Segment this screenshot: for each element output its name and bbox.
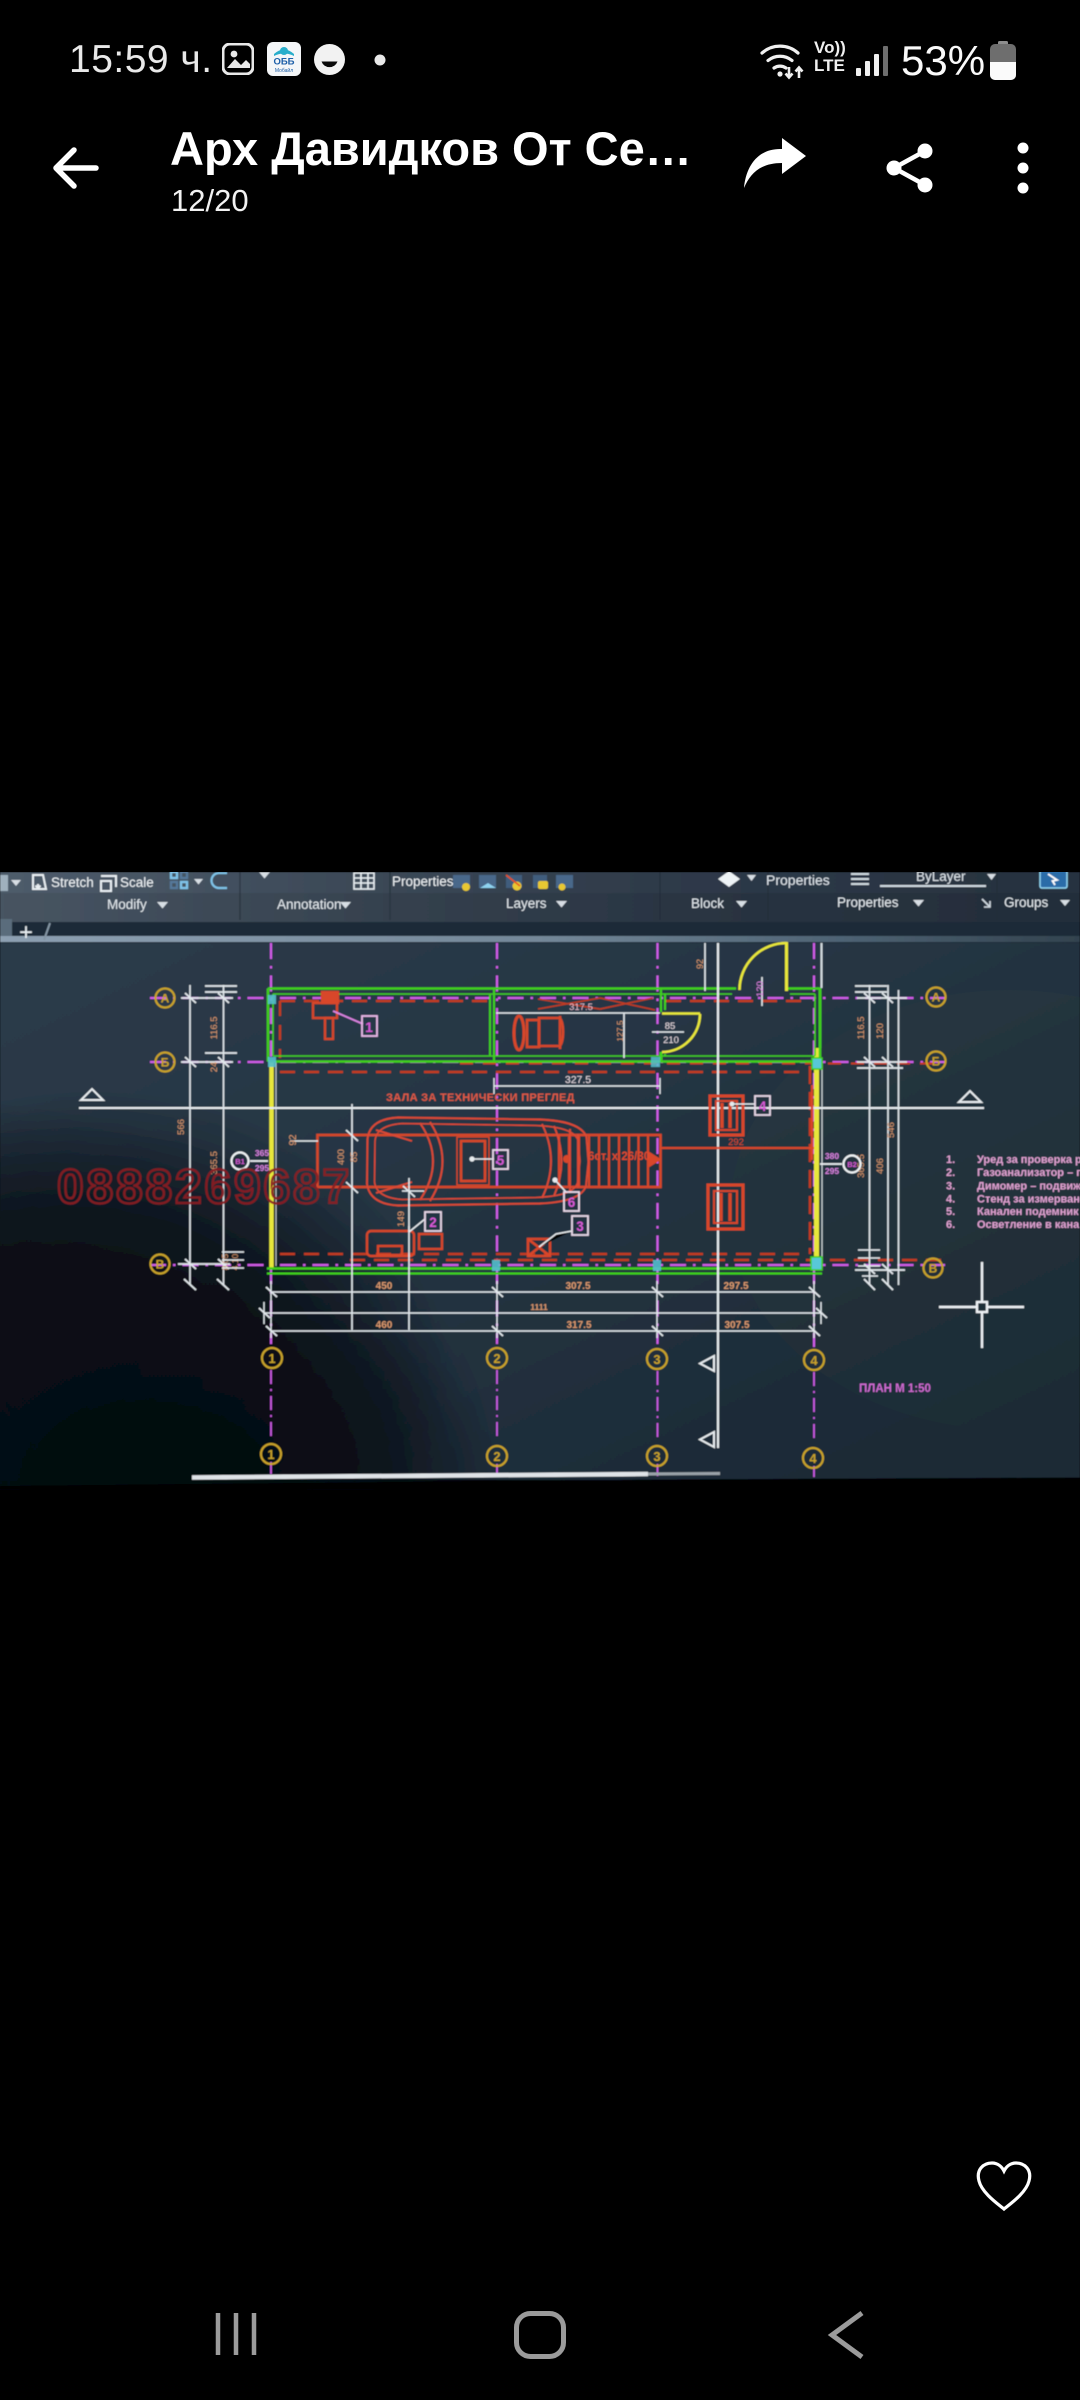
svg-text:92: 92 <box>288 1134 299 1146</box>
svg-text:92: 92 <box>695 959 705 969</box>
svg-text:4: 4 <box>759 1099 767 1114</box>
svg-text:1111: 1111 <box>530 1302 548 1312</box>
svg-text:450: 450 <box>376 1281 393 1292</box>
svg-text:317.5: 317.5 <box>569 1002 593 1013</box>
svg-text:А: А <box>932 991 941 1005</box>
svg-text:120: 120 <box>755 981 766 997</box>
svg-text:Уред за проверка р: Уред за проверка р <box>977 1154 1080 1166</box>
svg-text:6ст. х 26/30: 6ст. х 26/30 <box>588 1151 650 1163</box>
svg-text:4: 4 <box>809 1451 817 1466</box>
svg-text:1: 1 <box>365 1019 373 1035</box>
svg-text:120: 120 <box>875 1023 886 1039</box>
svg-text:2: 2 <box>493 1449 500 1464</box>
svg-text:ЗАЛА ЗА ТЕХНИЧЕСКИ ПРЕГЛЕД: ЗАЛА ЗА ТЕХНИЧЕСКИ ПРЕГЛЕД <box>386 1092 575 1104</box>
svg-text:1: 1 <box>267 1447 274 1462</box>
svg-text:317.5: 317.5 <box>566 1320 591 1331</box>
svg-text:Stretch: Stretch <box>51 875 94 890</box>
svg-text:4: 4 <box>810 1353 818 1368</box>
svg-text:85: 85 <box>665 1021 676 1032</box>
svg-text:В: В <box>156 1258 165 1272</box>
svg-text:+: + <box>19 919 33 946</box>
svg-text:116.5: 116.5 <box>209 1016 220 1039</box>
svg-text:1.: 1. <box>946 1154 955 1166</box>
svg-text:4.: 4. <box>946 1194 955 1206</box>
svg-text:Scale: Scale <box>120 875 154 890</box>
svg-text:Groups: Groups <box>1004 895 1049 910</box>
svg-text:Газоанализатор – п: Газоанализатор – п <box>977 1167 1080 1179</box>
svg-text:2: 2 <box>429 1215 437 1230</box>
svg-text:Осветление в кана: Осветление в кана <box>977 1219 1080 1231</box>
svg-text:Properties: Properties <box>837 895 899 910</box>
svg-text:406: 406 <box>875 1158 886 1174</box>
svg-text:ПЛАН М 1:50: ПЛАН М 1:50 <box>859 1383 931 1395</box>
svg-text:6.: 6. <box>946 1219 955 1231</box>
svg-text:Block: Block <box>691 896 724 911</box>
svg-text:Димомер – подвиж: Димомер – подвиж <box>977 1181 1080 1193</box>
svg-text:307.5: 307.5 <box>724 1320 749 1331</box>
svg-text:116.5: 116.5 <box>856 1016 867 1039</box>
svg-text:210: 210 <box>663 1035 679 1046</box>
svg-text:297.5: 297.5 <box>723 1281 748 1292</box>
svg-text:А: А <box>161 992 170 1006</box>
svg-text:Properties: Properties <box>392 874 454 889</box>
svg-text:Annotation: Annotation <box>277 897 342 912</box>
svg-text:3: 3 <box>653 1449 660 1464</box>
svg-text:Properties: Properties <box>766 872 830 888</box>
svg-text:460: 460 <box>376 1320 393 1331</box>
svg-text:2: 2 <box>493 1351 500 1366</box>
svg-text:3: 3 <box>653 1352 660 1367</box>
svg-text:Layers: Layers <box>506 896 547 911</box>
svg-text:Б: Б <box>932 1055 941 1069</box>
svg-text:ОББ: ОББ <box>273 57 294 68</box>
svg-text:546: 546 <box>886 1122 897 1138</box>
svg-text:295: 295 <box>825 1166 839 1176</box>
svg-text:5.: 5. <box>946 1206 955 1218</box>
svg-text:Мобайл: Мобайл <box>275 67 293 74</box>
svg-text:0888269687: 0888269687 <box>57 1161 352 1214</box>
svg-text:5: 5 <box>497 1153 505 1168</box>
svg-text:3.: 3. <box>946 1181 955 1193</box>
svg-text:3: 3 <box>576 1219 584 1234</box>
svg-text:380: 380 <box>825 1151 839 1161</box>
svg-text:566: 566 <box>176 1119 187 1135</box>
svg-text:327.5: 327.5 <box>565 1074 591 1086</box>
svg-text:Стенд за измерване: Стенд за измерване <box>977 1194 1080 1206</box>
svg-text:В2: В2 <box>847 1160 857 1169</box>
svg-text:Канален подемник -: Канален подемник - <box>977 1206 1080 1218</box>
svg-text:2.: 2. <box>946 1167 955 1179</box>
svg-text:В: В <box>929 1262 938 1276</box>
svg-text:149: 149 <box>396 1211 407 1227</box>
svg-text:6: 6 <box>568 1195 576 1210</box>
svg-text:Б: Б <box>161 1056 170 1070</box>
svg-text:307.5: 307.5 <box>565 1281 590 1292</box>
svg-text:127.5: 127.5 <box>615 1020 625 1042</box>
svg-text:365: 365 <box>255 1148 269 1158</box>
svg-text:24: 24 <box>209 1062 220 1073</box>
svg-text:ByLayer: ByLayer <box>916 872 966 884</box>
svg-text:Modify: Modify <box>107 897 147 912</box>
svg-text:1: 1 <box>268 1351 275 1366</box>
svg-text:292: 292 <box>728 1137 744 1148</box>
